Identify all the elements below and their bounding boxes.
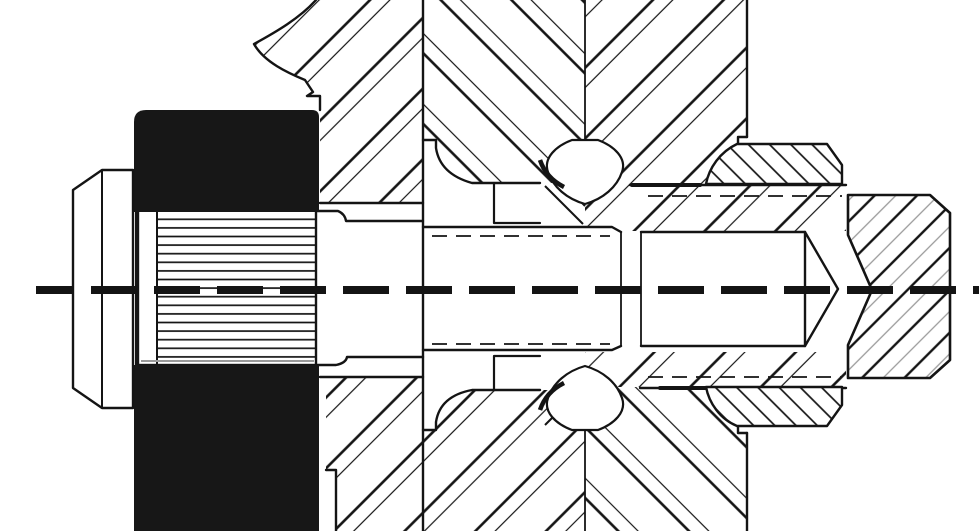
sectioned-locknut-upper <box>706 144 842 184</box>
hatched-hub-sleeve-lower <box>585 352 846 387</box>
gear-web-section-lower-left <box>326 377 423 531</box>
technical-drawing-page <box>0 0 979 531</box>
solid-flange-hub-lower <box>134 365 319 531</box>
sectioned-locknut-lower <box>706 387 842 426</box>
shaft-gear-assembly-section-drawing <box>0 0 979 531</box>
solid-flange-hub-upper <box>134 110 319 212</box>
